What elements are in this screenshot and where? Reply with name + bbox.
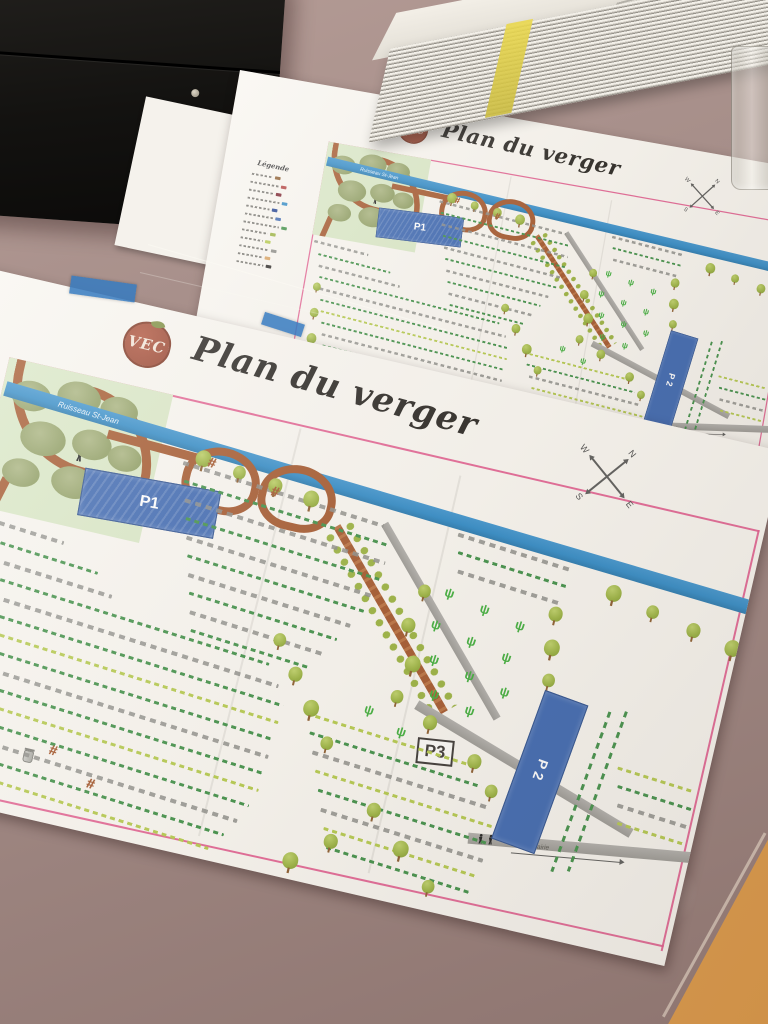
grass-icon: ψ bbox=[621, 341, 629, 350]
pond-p2-label: P2 bbox=[528, 757, 552, 786]
compass-south: S bbox=[573, 491, 585, 502]
tree-icon bbox=[636, 390, 646, 402]
tree-icon bbox=[510, 323, 521, 336]
pond-p2: P2 bbox=[642, 330, 698, 432]
tree-icon bbox=[286, 665, 305, 687]
legend-item-text bbox=[242, 228, 268, 234]
legend-color-chip bbox=[281, 226, 287, 230]
tree-icon bbox=[575, 334, 585, 346]
tree-icon bbox=[668, 298, 681, 313]
legend-item-text bbox=[249, 189, 274, 195]
grass-icon: ψ bbox=[443, 585, 456, 600]
grass-icon: ψ bbox=[642, 307, 650, 316]
orchard-row bbox=[318, 253, 390, 273]
compass-north: N bbox=[626, 448, 638, 459]
grass-icon: ψ bbox=[500, 649, 513, 664]
tree-icon bbox=[595, 349, 606, 362]
legend-color-chip bbox=[281, 185, 287, 189]
legend-item-text bbox=[239, 244, 269, 251]
tree-icon bbox=[421, 714, 440, 736]
pond-p1-label: P1 bbox=[413, 221, 426, 234]
grass-icon: ψ bbox=[620, 298, 628, 307]
tree-icon bbox=[624, 372, 635, 385]
tree-icon bbox=[465, 753, 484, 775]
legend-color-chip bbox=[264, 256, 270, 260]
grass-icon: ψ bbox=[642, 328, 650, 337]
grass-icon: ψ bbox=[428, 651, 441, 666]
legend-item-text bbox=[238, 252, 263, 258]
pond-p2: P2 bbox=[491, 690, 588, 854]
drinking-glass bbox=[731, 46, 768, 190]
grass-icon: ψ bbox=[465, 633, 478, 648]
legend-item-text bbox=[245, 212, 273, 219]
compass-rose: N E S W bbox=[562, 432, 652, 522]
flyer-stack bbox=[364, 0, 768, 139]
grass-icon: ψ bbox=[627, 277, 635, 286]
orchard-row bbox=[318, 265, 400, 288]
orchard-row bbox=[0, 776, 209, 850]
vec-logo: VEC bbox=[118, 317, 175, 373]
legend-color-chip bbox=[275, 217, 281, 221]
tree-icon bbox=[722, 639, 743, 664]
grass-icon: ψ bbox=[363, 702, 376, 717]
legend-color-chip bbox=[282, 202, 288, 206]
box-seam bbox=[0, 49, 280, 74]
legend-color-chip bbox=[275, 176, 281, 180]
legend: Légende bbox=[231, 159, 319, 305]
tree-icon bbox=[668, 319, 678, 331]
grass-icon: ψ bbox=[463, 703, 476, 718]
tree-icon bbox=[541, 638, 562, 663]
grass-icon: ψ bbox=[650, 286, 658, 295]
tree-icon bbox=[500, 303, 510, 315]
pond-p1-label: P1 bbox=[138, 493, 160, 514]
legend-item-text bbox=[246, 205, 270, 211]
leaf-icon bbox=[151, 320, 165, 330]
legend-color-chip bbox=[272, 208, 278, 212]
tree-icon bbox=[730, 274, 740, 286]
tree-icon bbox=[755, 283, 766, 296]
grass-icon: ψ bbox=[598, 310, 606, 319]
grass-icon: ψ bbox=[605, 268, 613, 277]
compass-north: N bbox=[714, 178, 721, 185]
legend-color-chip bbox=[265, 265, 271, 269]
box-button bbox=[191, 88, 200, 97]
legend-color-chip bbox=[276, 193, 282, 197]
tree-icon bbox=[521, 343, 534, 358]
orchard-row bbox=[719, 387, 766, 401]
grass-icon: ψ bbox=[559, 343, 567, 352]
tree-icon bbox=[684, 622, 703, 644]
tree-icon bbox=[483, 783, 500, 803]
orchard-row bbox=[0, 536, 98, 575]
legend-color-chip bbox=[270, 233, 276, 237]
map-title: Plan du verger bbox=[440, 118, 623, 182]
pond-p2-label: P2 bbox=[663, 372, 677, 390]
tree-icon bbox=[280, 851, 301, 876]
orchard-row bbox=[719, 398, 764, 412]
grass-icon: ψ bbox=[478, 601, 491, 616]
legend-color-chip bbox=[265, 240, 271, 244]
legend-item-text bbox=[236, 260, 263, 267]
legend-item-text bbox=[247, 197, 279, 204]
tree-icon bbox=[603, 583, 624, 608]
legend-item-text bbox=[252, 173, 273, 178]
photo-scene: Légende Ruisseau St-Jean de la mairie bbox=[0, 0, 768, 1024]
tree-icon bbox=[540, 672, 557, 692]
grass-icon: ψ bbox=[513, 618, 526, 633]
picnic-table-icon: # bbox=[85, 775, 97, 791]
legend-item-text bbox=[240, 236, 262, 242]
grass-icon: ψ bbox=[395, 724, 408, 739]
tree-icon bbox=[546, 605, 565, 627]
compass-axis bbox=[586, 459, 627, 493]
orchard-row bbox=[447, 281, 541, 307]
grass-icon: ψ bbox=[579, 356, 587, 365]
legend-item-text bbox=[243, 220, 279, 228]
legend-items bbox=[236, 172, 316, 274]
tree-icon bbox=[533, 365, 543, 377]
tree-icon bbox=[644, 604, 661, 624]
tree-icon bbox=[389, 689, 406, 709]
orchard-row bbox=[457, 570, 561, 606]
tree-icon bbox=[390, 839, 411, 864]
tree-icon bbox=[579, 289, 590, 302]
tree-icon bbox=[704, 262, 717, 277]
tree-icon bbox=[271, 632, 288, 652]
map-border-bottom bbox=[0, 780, 664, 947]
compass-rose: N E S W bbox=[674, 168, 730, 224]
legend-item-text bbox=[250, 181, 278, 188]
tree-icon bbox=[670, 278, 681, 291]
park-path-icon bbox=[0, 476, 11, 525]
direction-arrow-icon bbox=[511, 852, 623, 863]
legend-title: Légende bbox=[257, 159, 290, 174]
compass-south: S bbox=[682, 206, 689, 213]
orchard-row bbox=[0, 739, 238, 823]
grass-icon: ψ bbox=[498, 684, 511, 699]
legend-color-chip bbox=[271, 249, 277, 253]
logo-text: VEC bbox=[126, 332, 167, 358]
tree-icon bbox=[318, 735, 335, 755]
